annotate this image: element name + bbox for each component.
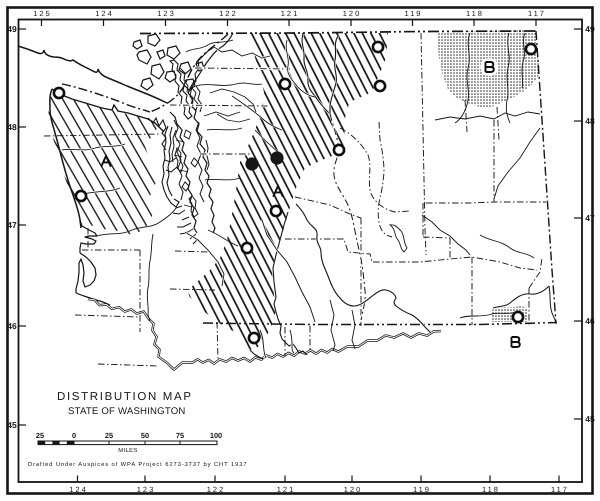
svg-text:119: 119 [405,9,423,18]
svg-text:47: 47 [585,213,595,223]
svg-text:120: 120 [343,9,362,18]
svg-text:49: 49 [585,24,595,34]
svg-text:48: 48 [585,116,595,126]
svg-text:124: 124 [95,9,114,18]
svg-text:123: 123 [157,9,176,18]
svg-text:121: 121 [281,9,300,18]
svg-text:118: 118 [466,9,484,18]
svg-text:49: 49 [7,24,17,34]
svg-text:STATE OF WASHINGTON: STATE OF WASHINGTON [68,406,186,417]
svg-text:118: 118 [482,485,500,494]
svg-text:119: 119 [413,485,431,494]
svg-text:46: 46 [585,316,595,326]
svg-text:100: 100 [210,431,222,440]
svg-text:25: 25 [36,431,44,440]
svg-text:MILES: MILES [118,447,137,454]
svg-text:121: 121 [277,485,296,494]
svg-text:117: 117 [528,9,546,18]
svg-text:45: 45 [585,414,595,424]
svg-text:0: 0 [72,431,76,440]
svg-text:DISTRIBUTION MAP: DISTRIBUTION MAP [57,391,193,403]
svg-text:50: 50 [141,431,149,440]
svg-text:25: 25 [105,431,113,440]
svg-text:125: 125 [33,9,52,18]
svg-text:75: 75 [176,431,184,440]
svg-text:122: 122 [219,9,238,18]
svg-text:45: 45 [7,420,17,430]
svg-text:Drafted Under Auspices of: Drafted Under Auspices of WPA Project 62… [28,461,247,468]
svg-text:48: 48 [7,122,17,132]
svg-text:123: 123 [137,485,156,494]
svg-text:124: 124 [69,485,88,494]
svg-text:122: 122 [207,485,226,494]
svg-text:47: 47 [7,220,17,230]
svg-text:46: 46 [7,321,17,331]
svg-text:117: 117 [551,485,569,494]
svg-text:120: 120 [344,485,363,494]
